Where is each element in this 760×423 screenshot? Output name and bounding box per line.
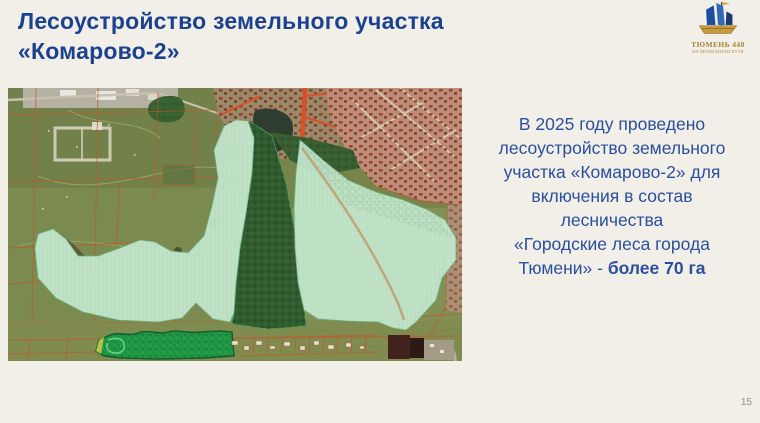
tyumen-440-logo: ТЮМЕНЬ 440 НА ПРАВИЛЬНОМ ПУТИ	[681, 2, 755, 54]
satellite-map-image	[8, 88, 462, 361]
logo-tagline: НА ПРАВИЛЬНОМ ПУТИ	[681, 50, 755, 54]
body-paragraph-lines: В 2025 году проведено лесоустройство зем…	[499, 114, 726, 254]
slide: Лесоустройство земельного участка «Комар…	[0, 0, 760, 423]
logo-title: ТЮМЕНЬ 440	[681, 41, 755, 49]
map-highlight-forest-patch	[96, 331, 234, 359]
satellite-map	[8, 88, 462, 361]
body-paragraph: В 2025 году проведено лесоустройство зем…	[464, 112, 760, 280]
slide-title: Лесоустройство земельного участка «Комар…	[18, 6, 558, 67]
ship-icon	[690, 2, 746, 36]
area-value: более 70 га	[608, 258, 706, 278]
page-number: 15	[741, 397, 752, 408]
body-paragraph-last-line: Тюмени» - более 70 га	[464, 256, 760, 280]
